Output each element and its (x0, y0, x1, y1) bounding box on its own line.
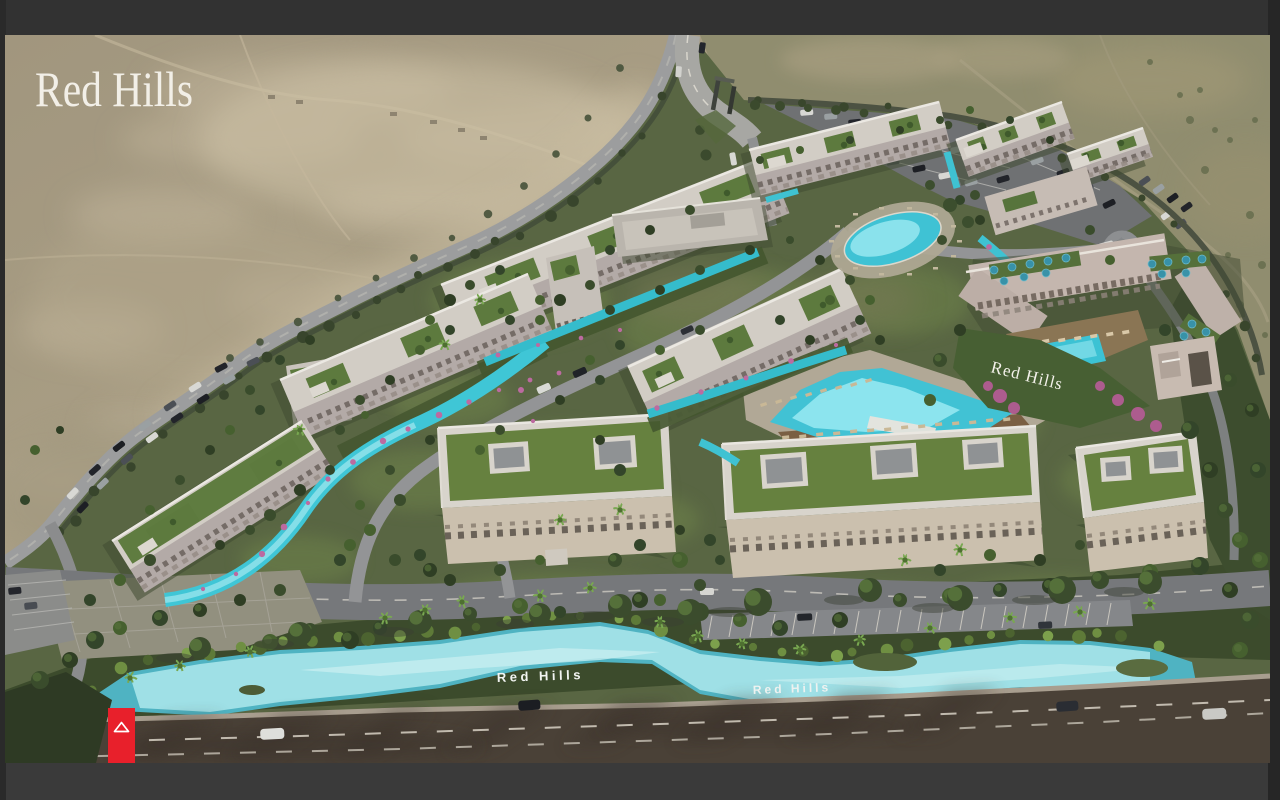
svg-text:Red Hills: Red Hills (497, 667, 585, 685)
svg-text:Red Hills: Red Hills (35, 61, 193, 117)
svg-text:Red Hills: Red Hills (753, 680, 832, 697)
